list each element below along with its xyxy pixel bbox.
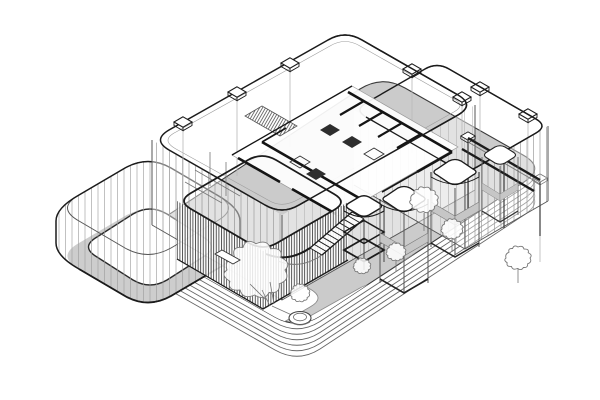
column-cap <box>281 58 299 72</box>
drawing-canvas <box>0 0 600 400</box>
column-cap <box>228 87 246 101</box>
tree-scribble <box>353 258 371 274</box>
tree-scribble <box>505 246 531 270</box>
tree-scribble <box>290 284 310 302</box>
tree-scribble <box>386 243 406 261</box>
axonometric-drawing <box>0 0 600 400</box>
tree-scribble <box>441 219 463 239</box>
tree-scribble <box>410 187 439 213</box>
